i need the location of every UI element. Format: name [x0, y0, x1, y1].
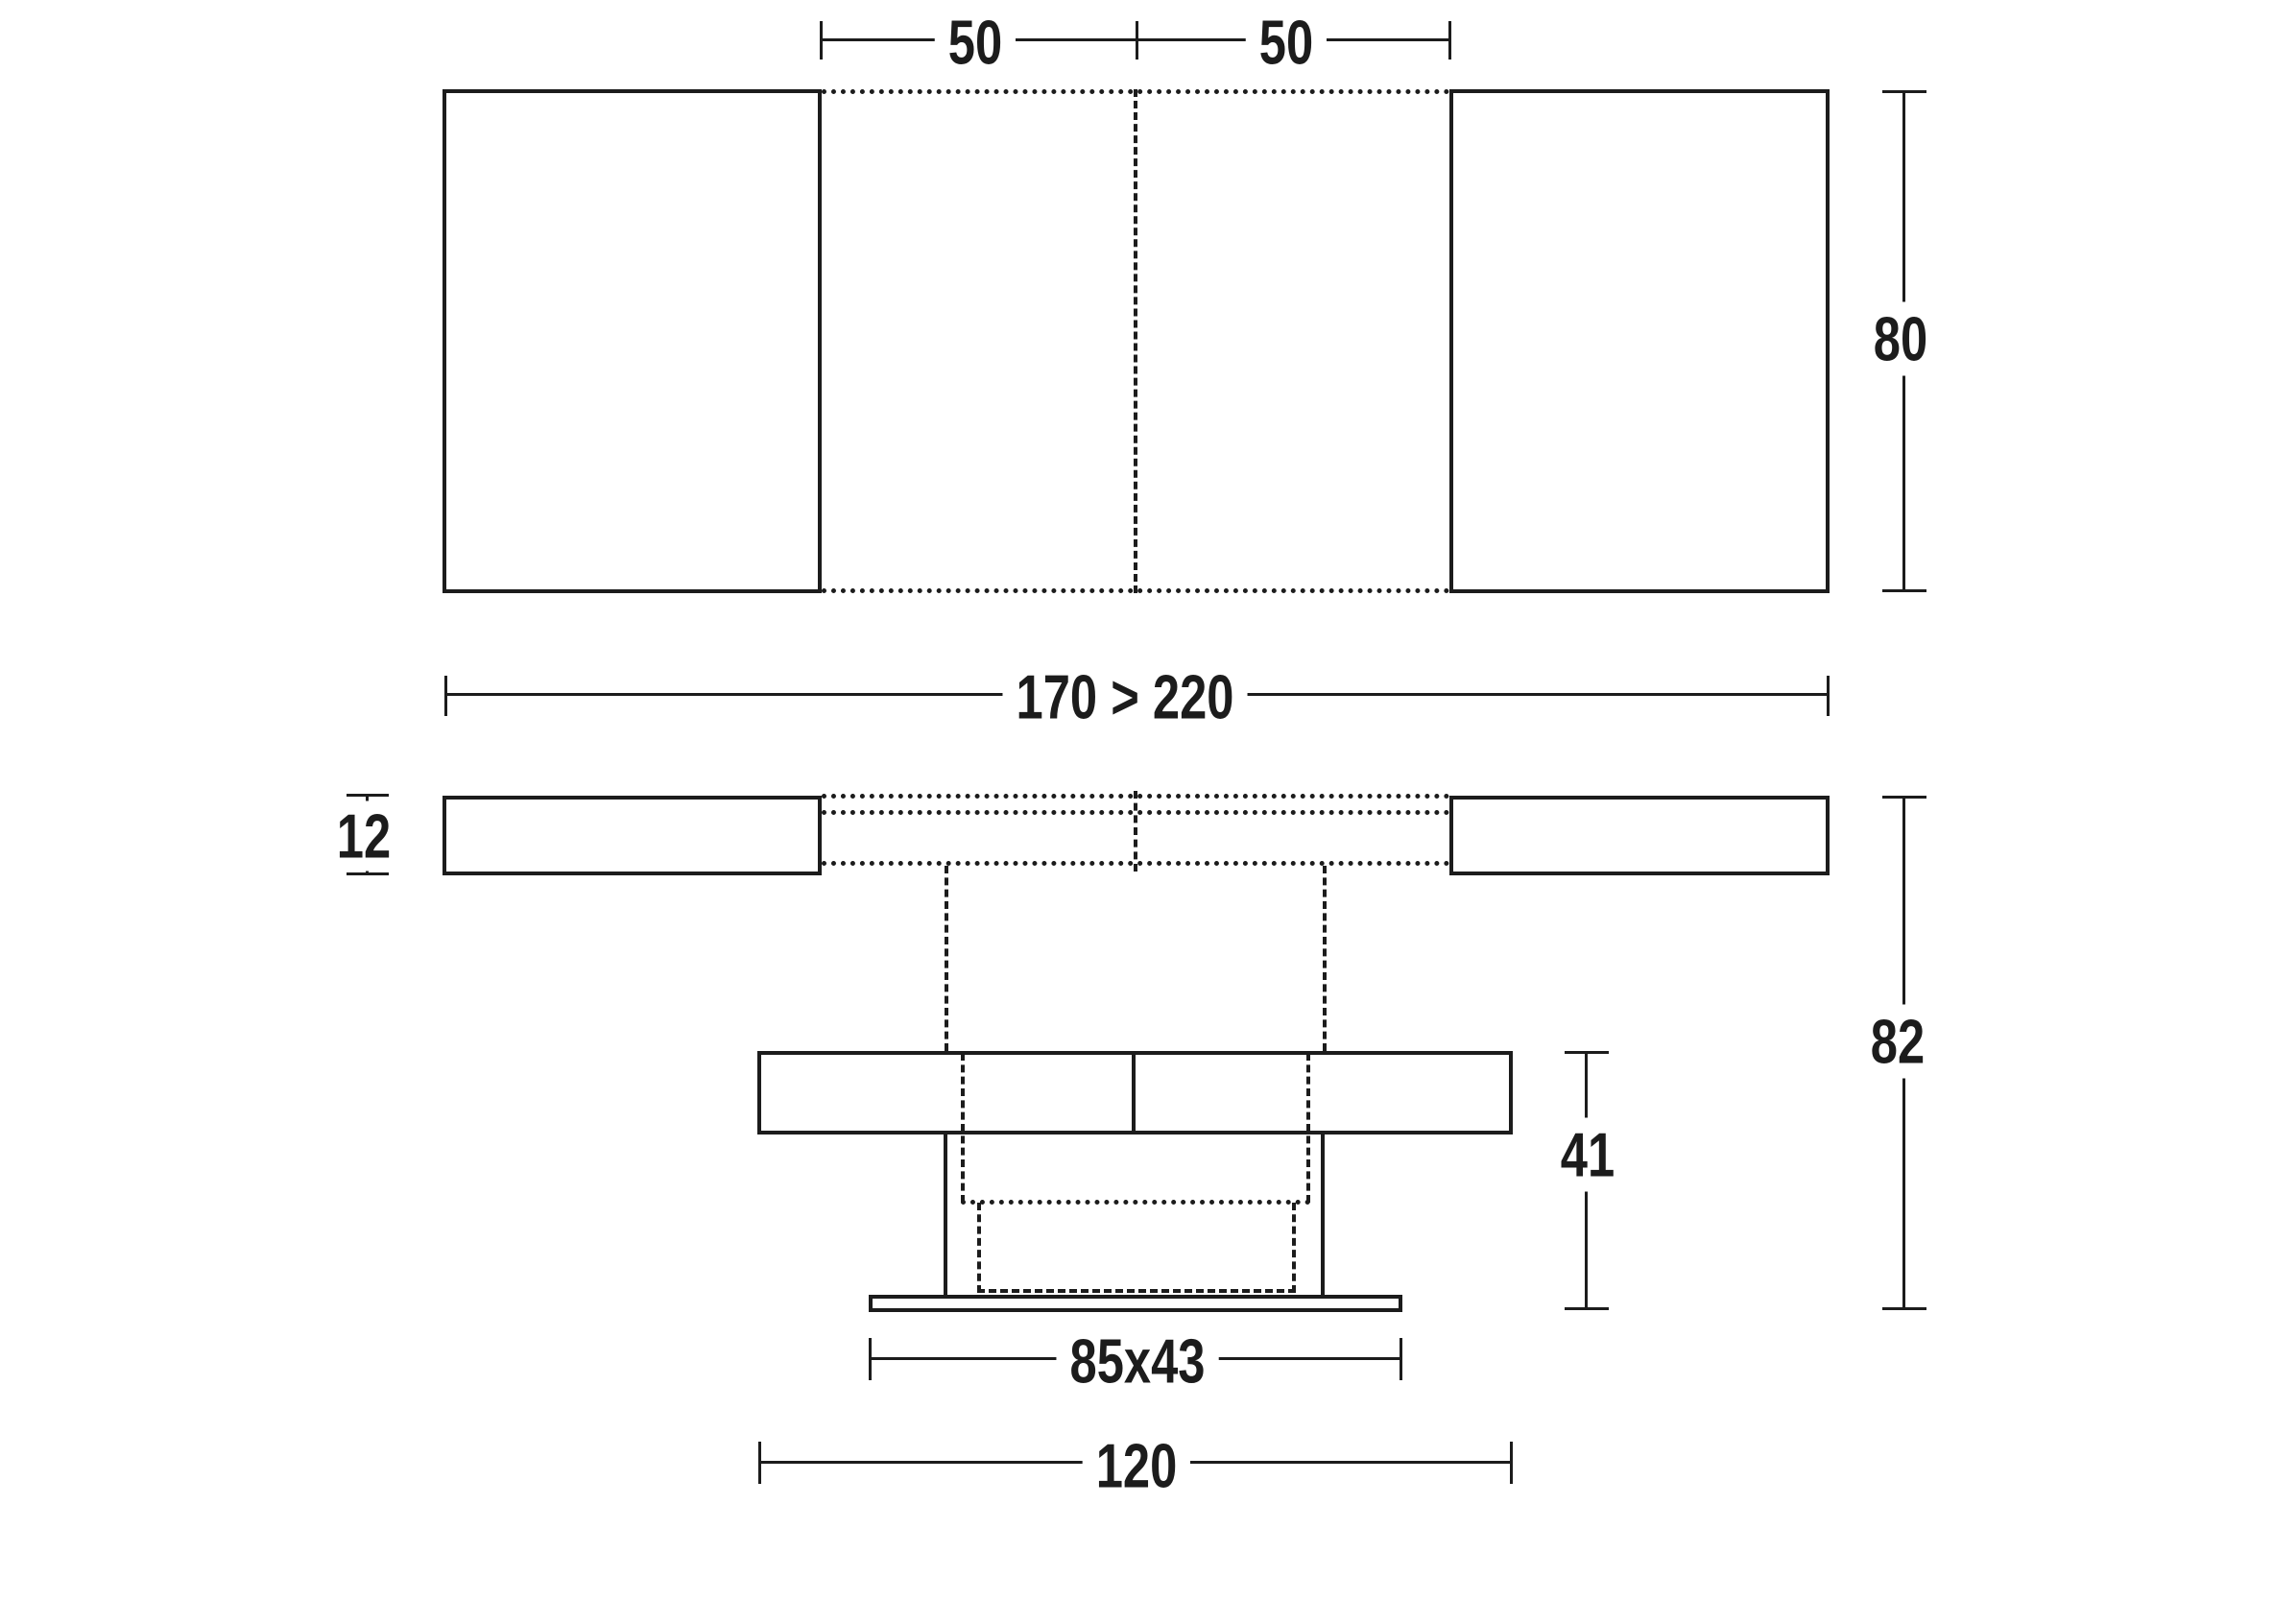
side-view-center-split-dashed-line [1134, 791, 1137, 872]
dim-length-tick-left [444, 676, 447, 716]
dim-height-open-label: 82 [1857, 1005, 1938, 1079]
inner-column-left-hidden-line [961, 1053, 965, 1203]
dim-thickness-cap-top [347, 794, 389, 797]
dim-height-open-cap-bottom [1882, 1307, 1926, 1310]
technical-drawing-canvas: 50 50 80 170 > 220 [0, 0, 2273, 1624]
innermost-column-bottom-hidden-line [977, 1289, 1296, 1293]
dim-leaf-left-label: 50 [935, 6, 1016, 80]
dim-depth-cap-bottom [1882, 589, 1926, 592]
side-view-top-left-panel [443, 796, 822, 875]
pedestal-housing-left-hidden-line [945, 866, 948, 1051]
innermost-column-right-hidden-line [1292, 1203, 1296, 1293]
dim-length-label: 170 > 220 [1002, 660, 1247, 734]
dim-base-width-label: 120 [1083, 1429, 1191, 1503]
dim-thickness-cap-bottom [347, 872, 389, 875]
dim-length-tick-right [1827, 676, 1830, 716]
pedestal-left-edge [944, 1134, 947, 1295]
dim-base-width-tick-right [1510, 1442, 1513, 1484]
dim-leaf-right-label: 50 [1246, 6, 1327, 80]
dim-height-open-cap-top [1882, 796, 1926, 799]
dim-leaves-tick-right [1448, 21, 1451, 60]
dim-depth-cap-top [1882, 90, 1926, 93]
pedestal-housing-right-hidden-line [1323, 866, 1327, 1051]
inner-column-right-hidden-line [1306, 1053, 1310, 1203]
dim-base-footprint-tick-left [869, 1338, 872, 1380]
dim-depth-label: 80 [1860, 302, 1941, 376]
dim-base-width-tick-left [758, 1442, 761, 1484]
inner-column-bottom-dotted-line [961, 1200, 1310, 1205]
pedestal-right-edge [1321, 1134, 1325, 1295]
lower-shelf-center-divider [1132, 1051, 1136, 1134]
dim-leaves-tick-middle [1136, 21, 1138, 60]
dim-height-closed-label: 41 [1547, 1118, 1628, 1192]
innermost-column-left-hidden-line [977, 1203, 981, 1293]
top-view-center-split-dashed-line [1134, 89, 1137, 593]
dim-height-closed-cap-top [1565, 1051, 1609, 1054]
top-view-right-panel [1449, 89, 1830, 593]
base-plate [869, 1295, 1402, 1312]
top-view-left-panel [443, 89, 822, 593]
dim-leaves-tick-left [820, 21, 823, 60]
dim-height-closed-cap-bottom [1565, 1307, 1609, 1310]
dim-base-footprint-label: 85x43 [1056, 1325, 1218, 1398]
dim-thickness-label: 12 [329, 801, 398, 872]
dim-base-footprint-tick-right [1400, 1338, 1402, 1380]
side-view-top-right-panel [1449, 796, 1830, 875]
